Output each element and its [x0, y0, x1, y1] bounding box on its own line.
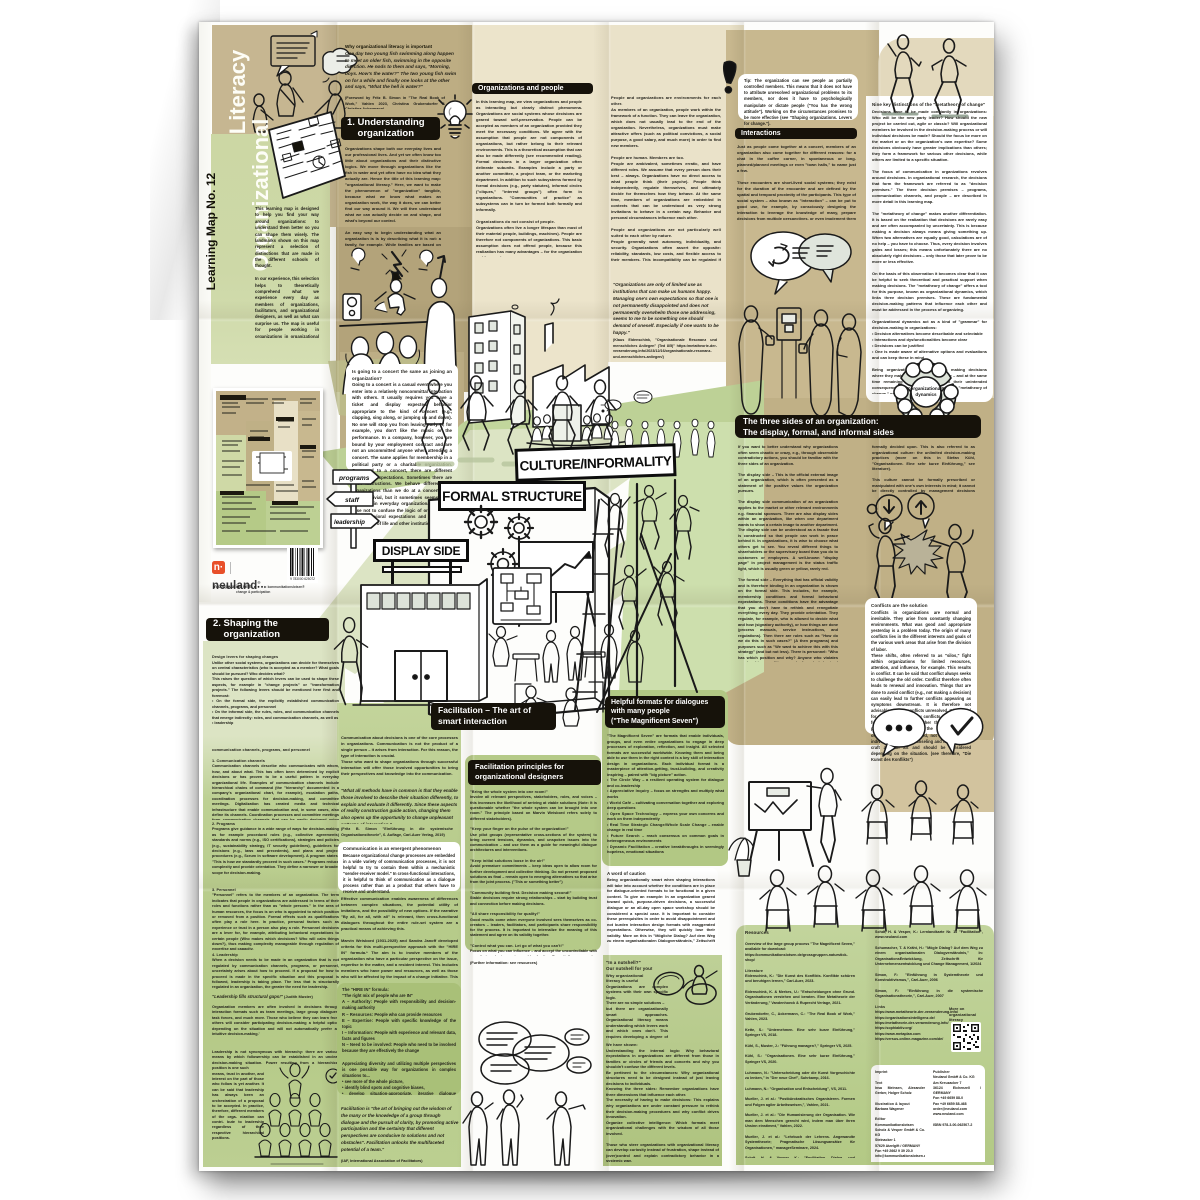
- svg-text:programs: programs: [338, 475, 370, 482]
- svg-text:staff: staff: [345, 497, 360, 504]
- svg-text:dynamics: dynamics: [915, 392, 937, 397]
- svg-text:organizational: organizational: [910, 386, 941, 391]
- svg-text:leadership: leadership: [334, 519, 365, 526]
